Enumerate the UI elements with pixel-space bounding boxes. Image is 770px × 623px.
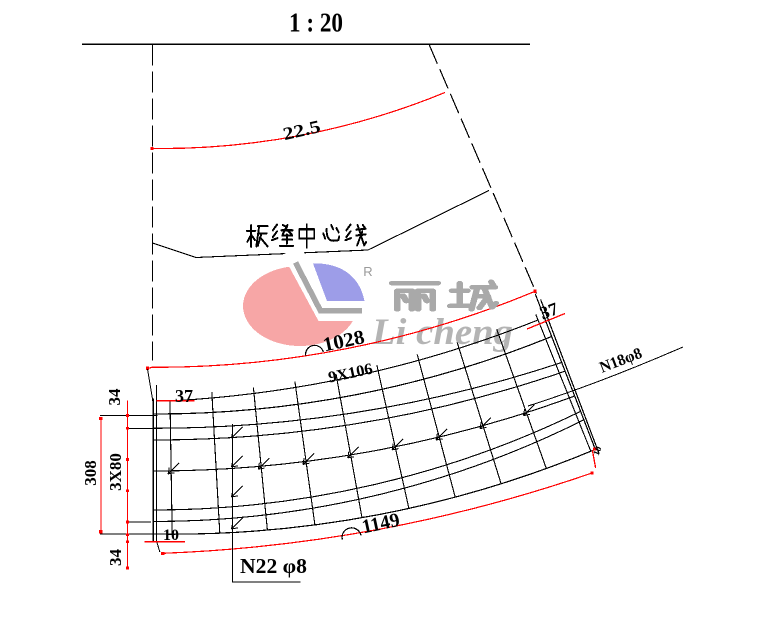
svg-text:N18φ8: N18φ8 xyxy=(597,345,644,377)
svg-text:10: 10 xyxy=(163,527,179,544)
svg-text:34: 34 xyxy=(106,549,125,567)
svg-text:37: 37 xyxy=(175,386,193,406)
svg-text:1149: 1149 xyxy=(360,509,402,538)
svg-text:Li cheng: Li cheng xyxy=(371,312,513,353)
svg-text:9X106: 9X106 xyxy=(327,361,375,387)
svg-text:R: R xyxy=(363,264,372,279)
svg-text:N22 φ8: N22 φ8 xyxy=(240,554,307,578)
svg-text:1 : 20: 1 : 20 xyxy=(289,8,343,38)
svg-text:3X80: 3X80 xyxy=(106,453,125,491)
svg-text:22.5: 22.5 xyxy=(281,116,323,144)
svg-text:308: 308 xyxy=(81,460,100,486)
svg-text:37: 37 xyxy=(537,298,561,323)
svg-text:34: 34 xyxy=(105,388,124,406)
